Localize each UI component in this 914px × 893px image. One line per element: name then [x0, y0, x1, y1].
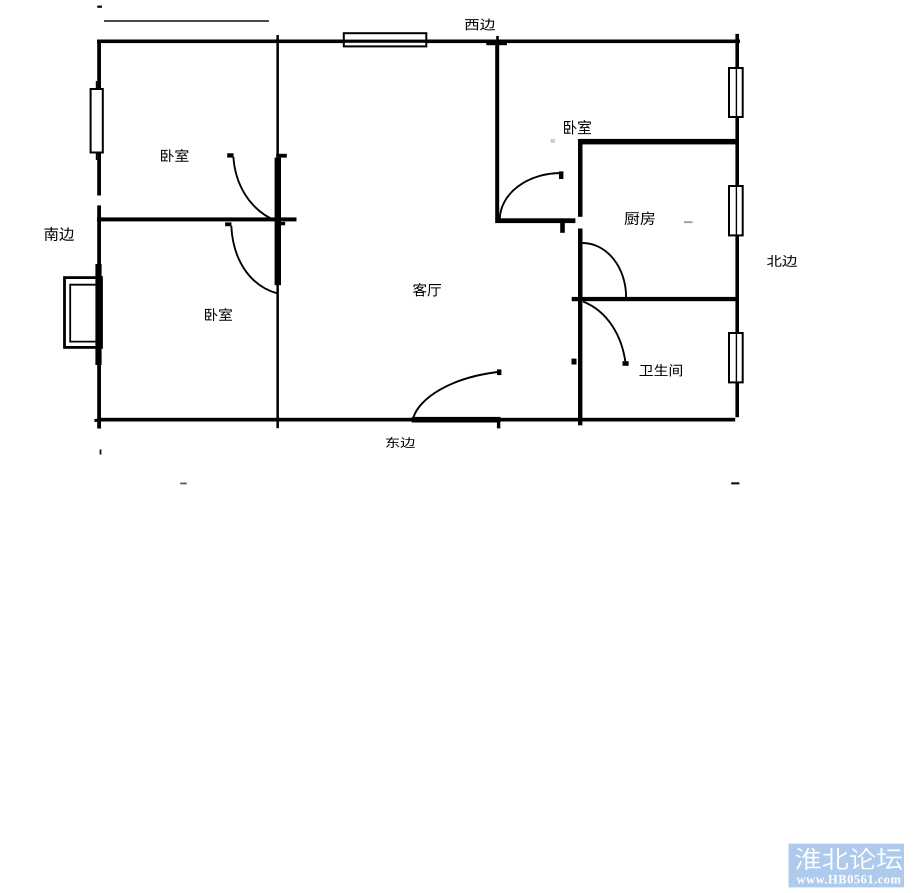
- svg-text:www.HB0561.com: www.HB0561.com: [797, 873, 902, 887]
